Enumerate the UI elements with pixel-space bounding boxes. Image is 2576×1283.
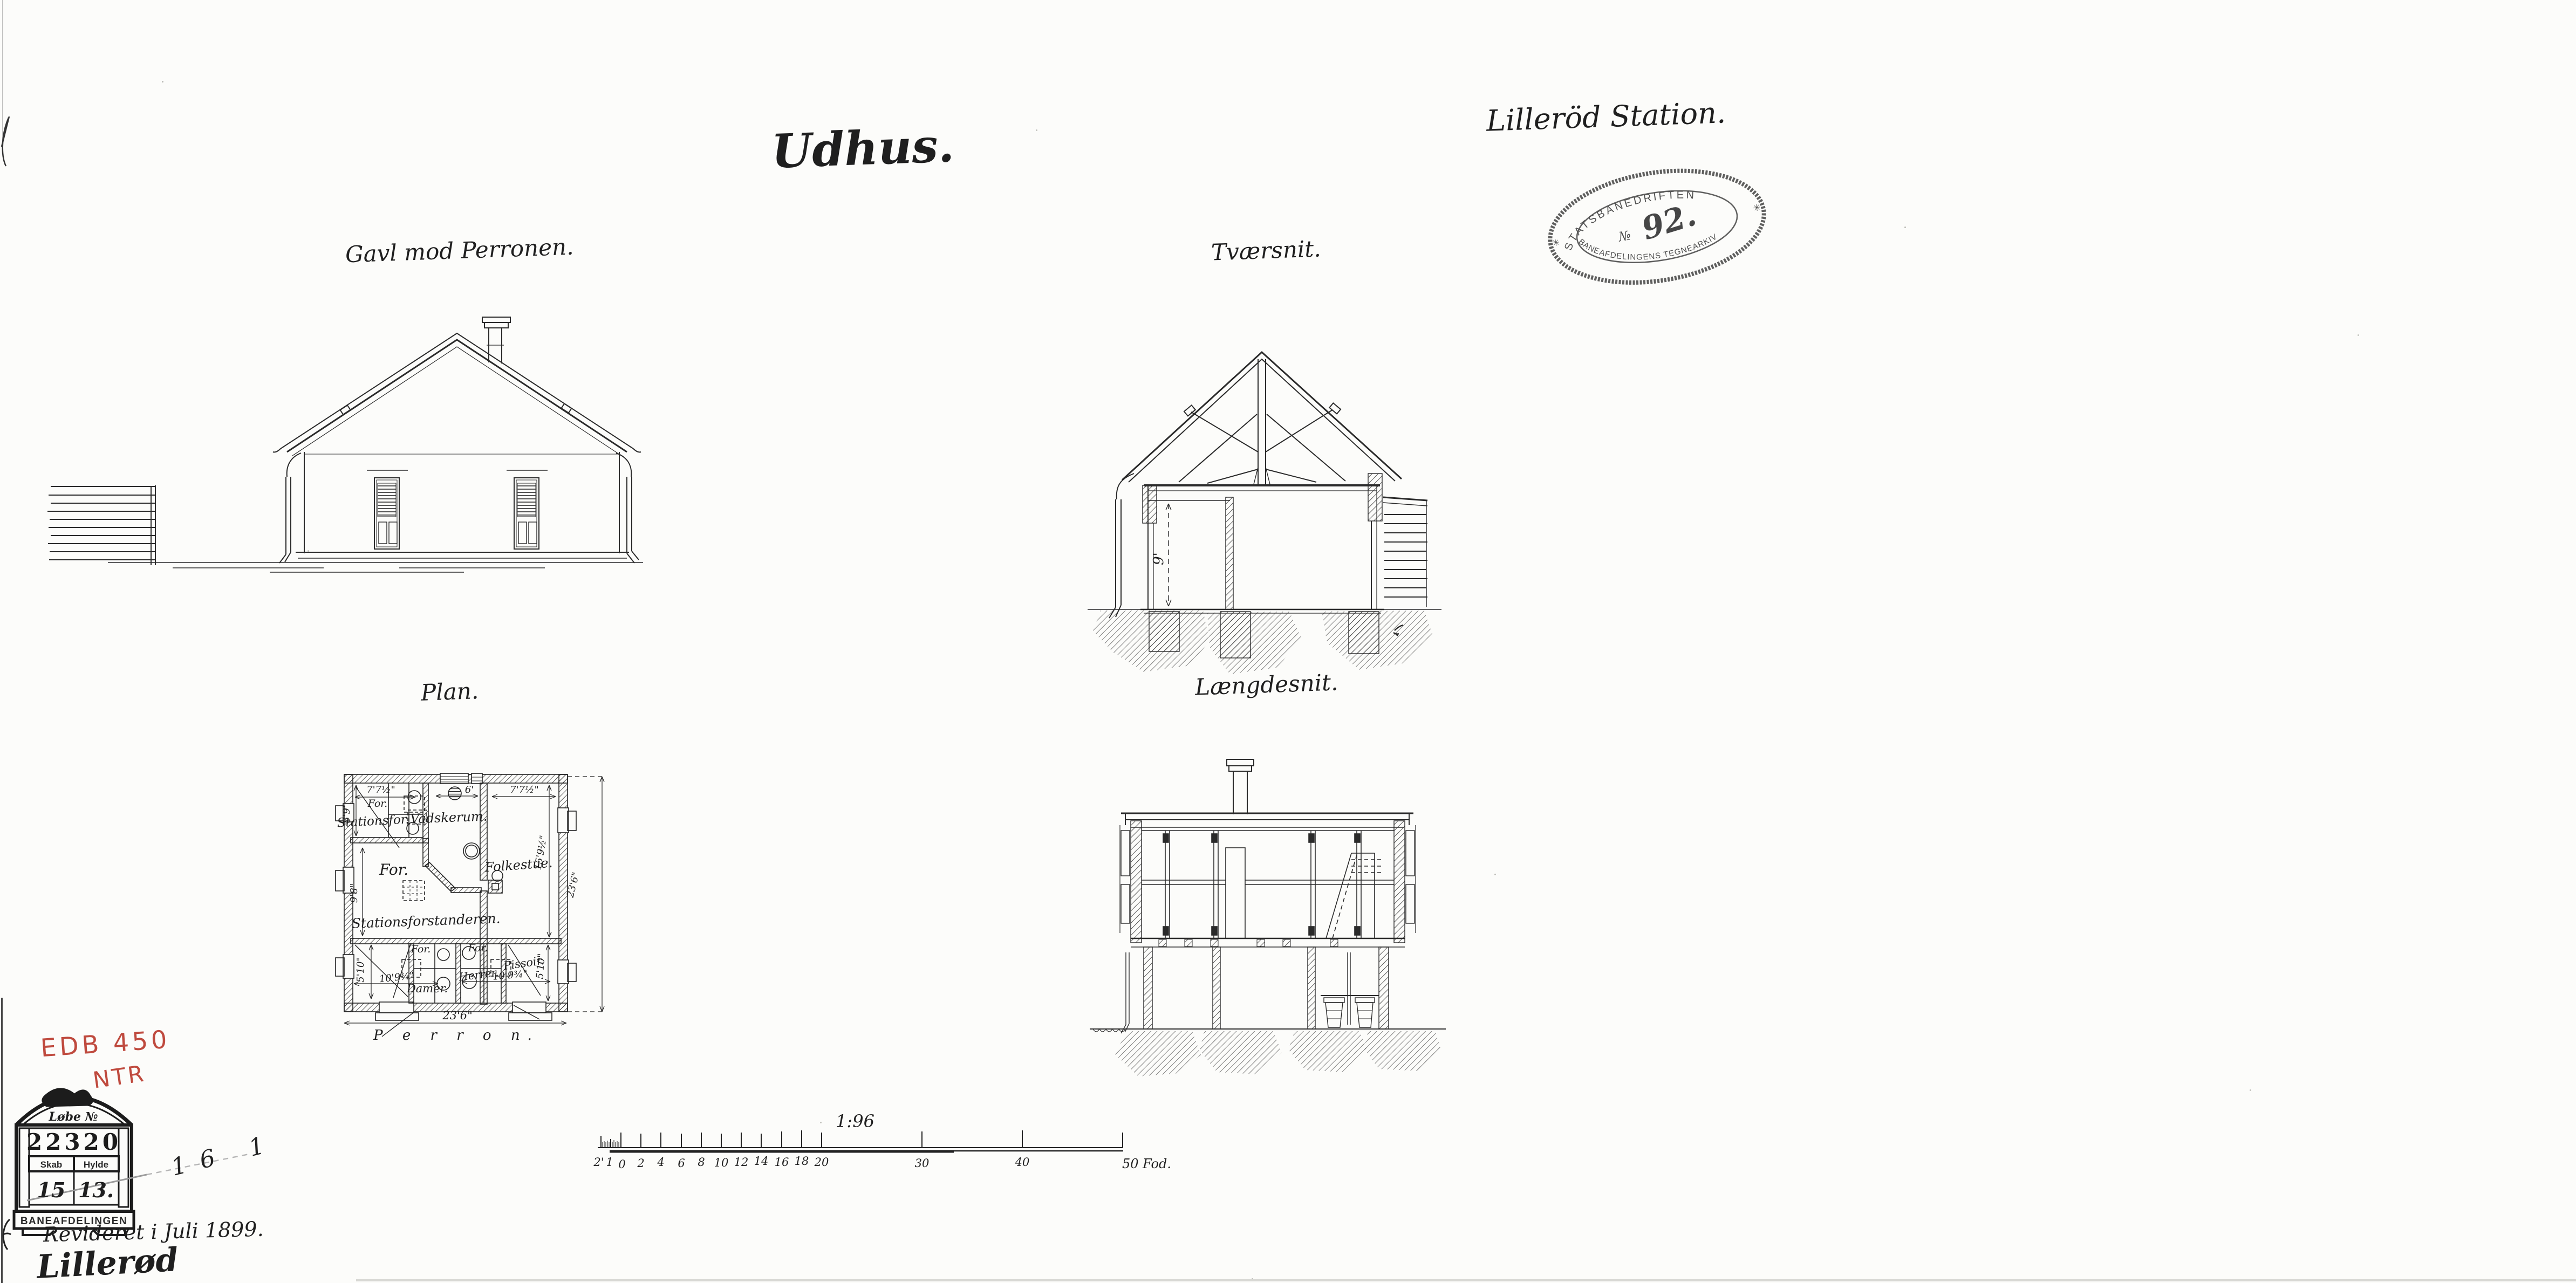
station-signature: Lillerød — [36, 1241, 179, 1283]
ground — [1090, 1029, 1446, 1076]
door-left — [367, 470, 408, 549]
stamp-skab-value: 15 — [37, 1178, 66, 1202]
dim-23-6-bottom: 23'6" — [442, 1009, 473, 1022]
tick-label: 40 — [1015, 1156, 1030, 1169]
scale-bar: 1:96 2' 1 0 2 4 6 8 10 12 14 16 18 20 30… — [583, 1106, 1187, 1186]
stamp-lobe-no: Løbe № — [48, 1110, 98, 1124]
paper-speckles — [162, 81, 163, 83]
dim-7-7-right: 7'7½" — [510, 784, 539, 795]
scale-end-label: 50 Fod. — [1122, 1156, 1171, 1171]
dim-9-8: 9'8" — [349, 883, 360, 903]
cross-section-label: Tværsnit. — [1211, 235, 1321, 265]
room-vadskerum: Vadskerum. — [410, 809, 488, 827]
foundation-ground — [1088, 609, 1441, 674]
dim-6: 6' — [465, 784, 474, 795]
stamp-no-sign: № — [1617, 228, 1632, 244]
ground-line — [108, 562, 643, 572]
dim-7-7-left: 7'7½" — [366, 784, 395, 795]
tick-label: 14 — [754, 1155, 769, 1168]
scanned-drawing-sheet: Udhus. Lilleröd Station. STATSBANEDRIFTE… — [0, 0, 2576, 1283]
stamp-star-right-icon: ✳ — [1752, 202, 1761, 214]
longitudinal-section-drawing — [1079, 755, 1457, 1079]
stamp-hylde-value: 13. — [78, 1178, 114, 1202]
dim-10-9-right: 10'9¾" — [492, 968, 528, 983]
pencil-numbers: 16 14 — [168, 1121, 271, 1181]
station-title: Lilleröd Station. — [1486, 95, 1726, 138]
platform-fence — [47, 485, 155, 565]
platform-fence-right — [1383, 497, 1427, 607]
scale-tick-labels: 2' 1 0 2 4 6 8 10 12 14 16 18 20 30 40 5… — [593, 1155, 1171, 1171]
page-title: Udhus. — [770, 118, 955, 179]
door-right — [507, 470, 548, 549]
oval-archive-stamp: STATSBANEDRIFTEN BANEAFDELINGENS TEGNEAR… — [1534, 147, 1788, 309]
edge-mark-top — [0, 113, 16, 178]
edge-mark-bottom — [0, 1216, 13, 1254]
floor-plan-drawing: Stationsfor. 5'9" 7'7½" For. Vadskerum. … — [302, 750, 637, 1100]
gable-elevation-drawing — [43, 313, 647, 582]
stair — [1326, 853, 1381, 938]
scan-edge-bottom — [356, 1279, 2576, 1281]
tick-label: 2' — [593, 1156, 604, 1169]
tick-label: 10 — [714, 1156, 729, 1169]
stamp-star-left-icon: ✳ — [1551, 237, 1560, 249]
room-damer: Damer. — [406, 982, 448, 995]
room-for-hall: For. — [379, 861, 408, 879]
chimney — [1227, 759, 1254, 814]
tick-label: 4 — [657, 1156, 664, 1169]
tick-label: 1 — [606, 1156, 613, 1169]
plan-label: Plan. — [420, 677, 479, 706]
tick-label: 30 — [915, 1157, 930, 1170]
tick-label: 12 — [734, 1156, 749, 1169]
room-for-herrer: For. — [468, 942, 488, 954]
room-for-top: For. — [367, 798, 388, 809]
scale-ratio: 1:96 — [836, 1111, 874, 1131]
dim-5-10-left: 5'10" — [355, 957, 366, 983]
wall-framing — [1142, 831, 1394, 938]
tick-label: 8 — [698, 1156, 705, 1169]
dim-5-10-right: 5'10" — [534, 953, 547, 979]
downpipe-left — [1109, 474, 1134, 618]
cross-section-height-dim: 9' — [1151, 552, 1167, 565]
perron-label: P e r r o n. — [373, 1027, 539, 1044]
tick-label: 18 — [795, 1155, 809, 1168]
floor-band — [1131, 938, 1405, 947]
tick-label: 16 — [775, 1156, 789, 1169]
room-for-damer: For. — [411, 943, 431, 955]
downpipe-left — [279, 453, 301, 563]
chimney — [482, 317, 510, 363]
stamp-skab-header: Skab — [40, 1159, 63, 1170]
tick-label: 6 — [678, 1157, 685, 1170]
tick-label: 20 — [814, 1156, 829, 1169]
room-stationsforstanderen: Stationsforstanderen. — [351, 910, 501, 931]
stamp-run-number: 22320 — [26, 1129, 121, 1155]
gable-walls — [296, 452, 629, 558]
gable-roof — [273, 333, 641, 456]
dim-5-9: 5'9" — [341, 804, 352, 823]
ink-blot — [1389, 618, 1413, 641]
archive-cabinet-stamp: Løbe № 22320 Skab Hylde 15 13. BANEAFDEL… — [12, 1073, 271, 1240]
tick-label: 0 — [618, 1158, 625, 1171]
stilts-foundation — [1090, 947, 1446, 1076]
stamp-hylde-header: Hylde — [84, 1159, 108, 1170]
latrine-buckets — [1321, 996, 1379, 1027]
roof-truss — [1122, 352, 1402, 491]
edb-annotation: EDB 450 — [39, 1025, 171, 1063]
gable-view-label: Gavl mod Perronen. — [345, 234, 574, 268]
roof-band — [1121, 813, 1413, 827]
tick-label: 2 — [637, 1157, 644, 1170]
section-walls — [1140, 474, 1384, 613]
